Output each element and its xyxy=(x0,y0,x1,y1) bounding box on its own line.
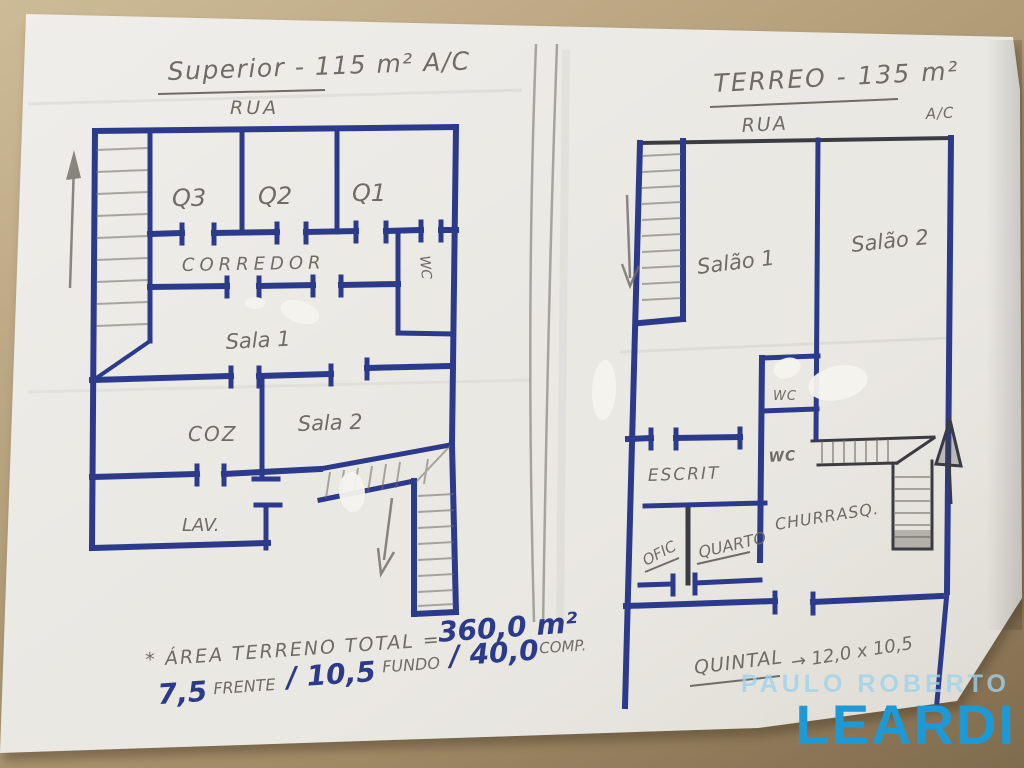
terreo-area-unit: A/C xyxy=(924,104,955,124)
terreo-street-label: RUA xyxy=(741,113,788,137)
room-label-wc-superior: WC xyxy=(416,255,434,280)
room-label-q1: Q1 xyxy=(352,179,386,207)
room-label-sala2: Sala 2 xyxy=(297,410,363,436)
watermark-line2: LEARDI xyxy=(796,693,1016,756)
room-label-coz: COZ xyxy=(188,422,237,446)
room-label-wc-upper: WC xyxy=(773,389,797,404)
room-label-sala1: Sala 1 xyxy=(225,327,291,354)
length-value: / 40,0 xyxy=(446,634,540,673)
room-label-wc-lower: WC xyxy=(768,448,797,466)
stair-shadow xyxy=(894,530,931,548)
room-label-lav: LAV. xyxy=(182,515,219,536)
floor-plan-photo: Superior - 115 m² A/C RUA Q3 Q2 Q1 CORRE… xyxy=(0,0,1024,768)
frontage-value: 7,5 xyxy=(156,675,208,711)
room-label-q2: Q2 xyxy=(258,182,292,210)
room-label-q3: Q3 xyxy=(172,184,206,212)
room-label-escrit: ESCRIT xyxy=(647,463,720,486)
depth-value: / 10,5 xyxy=(283,655,377,694)
superior-street-label: RUA xyxy=(230,97,279,119)
room-label-corredor: CORREDOR xyxy=(182,252,326,276)
paper-fold-shade xyxy=(986,40,1022,630)
depth-label: FUNDO xyxy=(382,653,441,676)
length-label: COMP. xyxy=(539,636,587,657)
sketch-canvas: Superior - 115 m² A/C RUA Q3 Q2 Q1 CORRE… xyxy=(0,0,1024,768)
